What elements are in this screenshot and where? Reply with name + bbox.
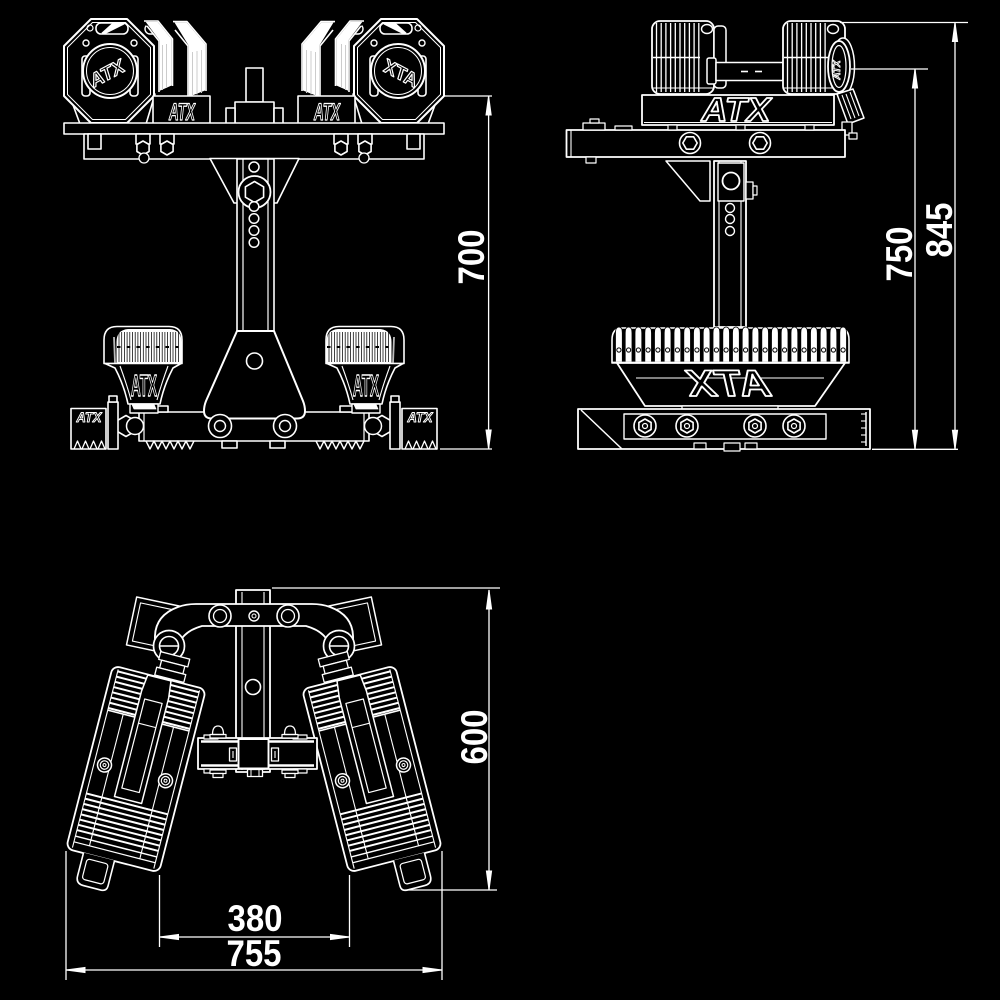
svg-text:ATX: ATX [168, 99, 196, 126]
svg-text:750: 750 [879, 227, 920, 282]
svg-text:ATX: ATX [407, 409, 434, 425]
svg-text:ATX: ATX [684, 363, 772, 404]
svg-text:ATX: ATX [76, 409, 103, 425]
svg-text:ATX: ATX [832, 59, 843, 81]
svg-text:755: 755 [227, 933, 282, 974]
svg-text:845: 845 [919, 203, 960, 258]
svg-text:700: 700 [451, 230, 492, 285]
svg-text:ATX: ATX [131, 368, 157, 403]
svg-text:600: 600 [454, 710, 495, 765]
svg-text:ATX: ATX [353, 368, 379, 403]
svg-text:ATX: ATX [313, 99, 341, 126]
